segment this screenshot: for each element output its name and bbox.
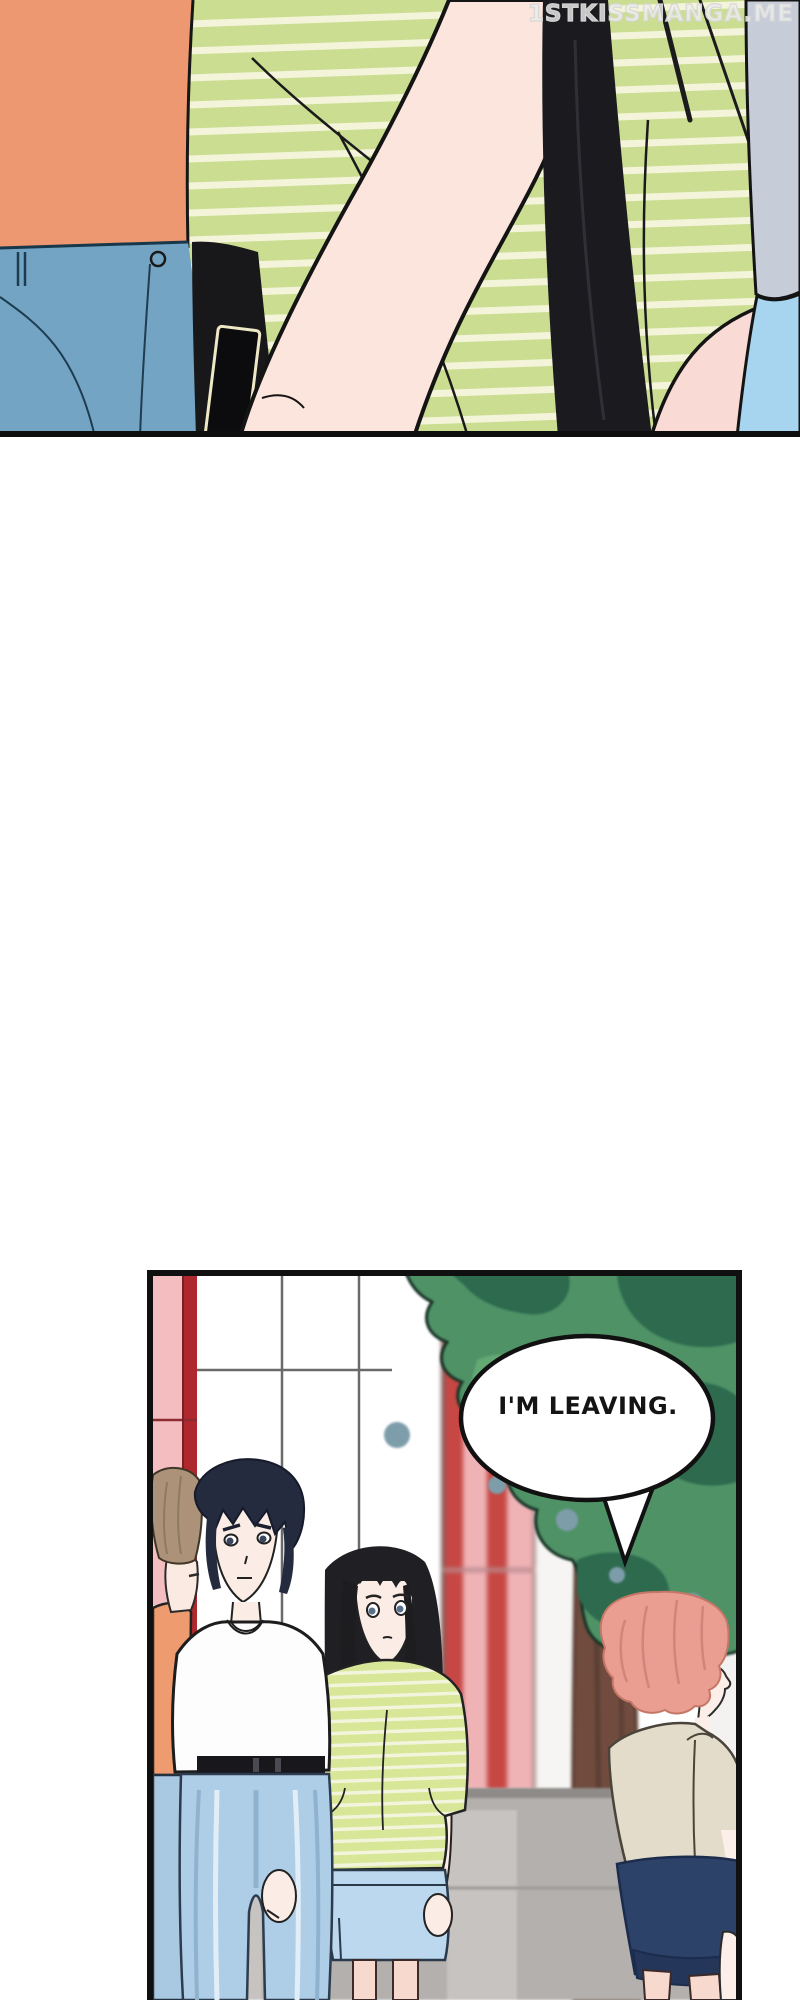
webtoon-page: { "watermark": { "text": "1STKISSMANGA.M… xyxy=(0,0,800,2000)
panel1-art xyxy=(0,0,800,437)
belt xyxy=(197,1756,325,1774)
jeans xyxy=(0,242,200,437)
panel-top-closeup: 1STKISSMANGA.ME xyxy=(0,0,800,437)
girl-hand xyxy=(424,1894,452,1936)
panel2-art xyxy=(147,1270,742,2000)
panel1-bottom-border xyxy=(0,431,800,437)
orange-person-back xyxy=(0,0,200,437)
speech-bubble-text: I'M LEAVING. xyxy=(477,1392,699,1420)
man-fist xyxy=(262,1870,296,1922)
panel-courtyard-scene: I'M LEAVING. xyxy=(147,1270,742,2000)
